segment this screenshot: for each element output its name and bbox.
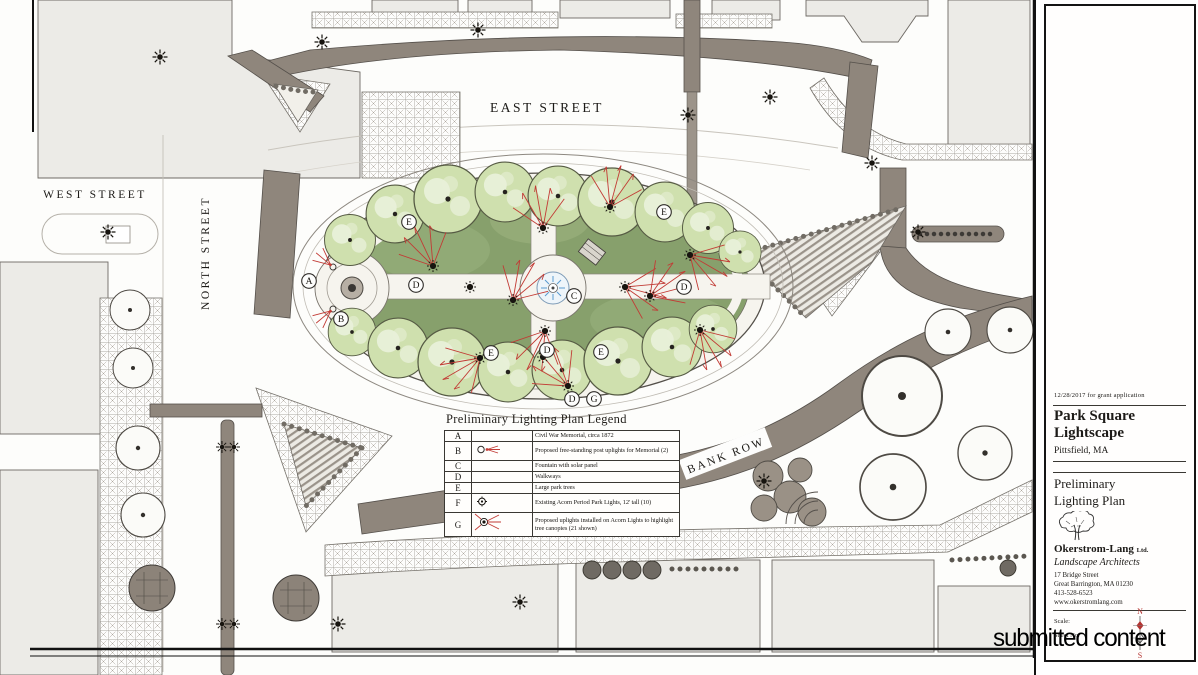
marker-G: G: [587, 392, 602, 407]
svg-text:D: D: [681, 283, 688, 293]
legend-letter: G: [445, 513, 472, 537]
sheet-title: Lighting Plan: [1054, 493, 1125, 509]
marker-D4: D: [565, 392, 580, 407]
legend-text: Large park trees: [533, 483, 680, 494]
sheet-title: Preliminary: [1054, 476, 1115, 492]
legend-text: Existing Acorn Period Park Lights, 12' t…: [533, 494, 680, 513]
acorn-light-icon: [474, 496, 528, 507]
firm-tree-logo: [1054, 511, 1100, 541]
title-block: 12/28/2017 for grant application Park Sq…: [1034, 0, 1198, 675]
svg-text:N: N: [1137, 607, 1143, 616]
legend-row-g: G Proposed uplights installed on Acorn L…: [445, 513, 680, 537]
svg-text:G: G: [591, 395, 598, 405]
legend-row-c: C Fountain with solar panel: [445, 461, 680, 472]
firm-phone: 413-528-6523: [1054, 590, 1093, 597]
title-block-frame: 12/28/2017 for grant application Park Sq…: [1044, 4, 1196, 662]
legend-text: Walkways: [533, 472, 680, 483]
north-street-label: NORTH STREET: [200, 196, 212, 310]
scanned-lighting-plan-sheet: A B C D D D D G E E E E EAST STREET WEST…: [0, 0, 1198, 675]
marker-A: A: [302, 274, 317, 289]
building-northeast: [948, 0, 1030, 152]
legend-letter: F: [445, 494, 472, 513]
firm-name: Okerstrom-Lang Ltd.: [1054, 543, 1148, 555]
legend-row-d: D Walkways: [445, 472, 680, 483]
fountain: [537, 272, 569, 304]
site-plan: A B C D D D D G E E E E EAST STREET WEST…: [0, 0, 1198, 675]
legend-letter: C: [445, 461, 472, 472]
marker-D1: D: [409, 278, 424, 293]
firm-website: www.okerstromlang.com: [1054, 599, 1123, 606]
project-location: Pittsfield, MA: [1054, 446, 1108, 456]
legend-table: A Civil War Memorial, circa 1872 B Propo…: [444, 430, 680, 537]
legend-text: Civil War Memorial, circa 1872: [533, 431, 680, 442]
svg-text:B: B: [338, 315, 344, 325]
acorn-uplight-icon: [474, 513, 528, 531]
firm-subtitle: Landscape Architects: [1054, 557, 1140, 568]
building-west-lower: [0, 470, 98, 675]
svg-text:D: D: [413, 281, 420, 291]
north-street-median: [221, 420, 234, 675]
legend-letter: B: [445, 442, 472, 461]
submitted-content-watermark: submitted content: [993, 624, 1165, 653]
marker-E1: E: [402, 215, 417, 230]
svg-text:A: A: [306, 277, 313, 287]
building-south-3: [772, 560, 934, 652]
west-street-label: WEST STREET: [43, 189, 147, 201]
svg-text:D: D: [544, 346, 551, 356]
legend-row-a: A Civil War Memorial, circa 1872: [445, 431, 680, 442]
svg-text:E: E: [488, 349, 494, 359]
legend-letter: D: [445, 472, 472, 483]
firm-address: Great Barrington, MA 01230: [1054, 581, 1133, 588]
marker-D3: D: [540, 343, 555, 358]
marker-E3: E: [484, 346, 499, 361]
svg-text:D: D: [569, 395, 576, 405]
post-uplight-icon: [474, 444, 528, 455]
legend-text: Proposed uplights installed on Acorn Lig…: [533, 513, 680, 537]
legend-row-e: E Large park trees: [445, 483, 680, 494]
svg-text:E: E: [406, 218, 412, 228]
legend-text: Proposed free-standing post uplights for…: [533, 442, 680, 461]
legend: Preliminary Lighting Plan Legend A Civil…: [444, 412, 677, 537]
marker-E2: E: [657, 205, 672, 220]
legend-letter: E: [445, 483, 472, 494]
marker-C: C: [567, 289, 582, 304]
building-west-upper: [0, 262, 108, 434]
svg-text:E: E: [598, 348, 604, 358]
marker-D2: D: [677, 280, 692, 295]
firm-address: 17 Bridge Street: [1054, 572, 1099, 579]
marker-E4: E: [594, 345, 609, 360]
project-title: Lightscape: [1054, 425, 1124, 442]
legend-letter: A: [445, 431, 472, 442]
east-street-label: EAST STREET: [490, 100, 604, 115]
svg-text:E: E: [661, 208, 667, 218]
legend-row-f: F Existing Acorn Period Park Lights, 12'…: [445, 494, 680, 513]
svg-text:C: C: [571, 292, 577, 302]
marker-B: B: [334, 312, 349, 327]
project-title: Park Square: [1054, 408, 1135, 425]
legend-text: Fountain with solar panel: [533, 461, 680, 472]
date-note: 12/28/2017 for grant application: [1054, 392, 1145, 399]
legend-row-b: B Proposed free-standing post uplights f…: [445, 442, 680, 461]
legend-title: Preliminary Lighting Plan Legend: [446, 412, 677, 427]
